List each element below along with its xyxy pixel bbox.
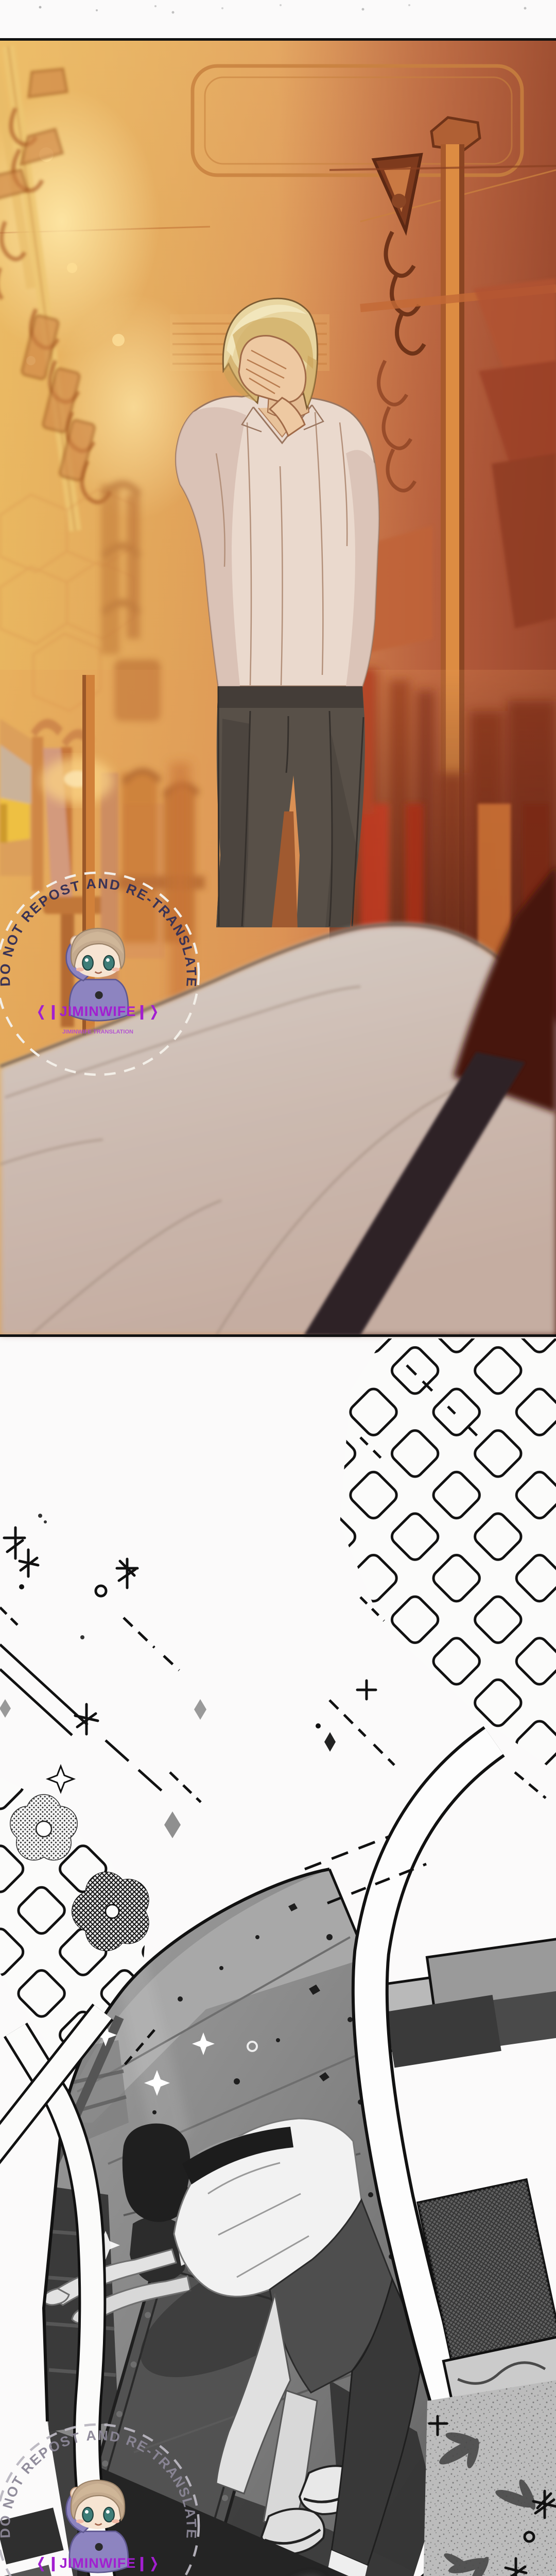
svg-text:❬❙JIMINWIFE❙❭: ❬❙JIMINWIFE❙❭ (36, 2555, 161, 2571)
svg-text:JIMINWIFE TRANSLATION: JIMINWIFE TRANSLATION (62, 1029, 133, 1035)
svg-text:❬❙JIMINWIFE❙❭: ❬❙JIMINWIFE❙❭ (36, 1004, 161, 1020)
